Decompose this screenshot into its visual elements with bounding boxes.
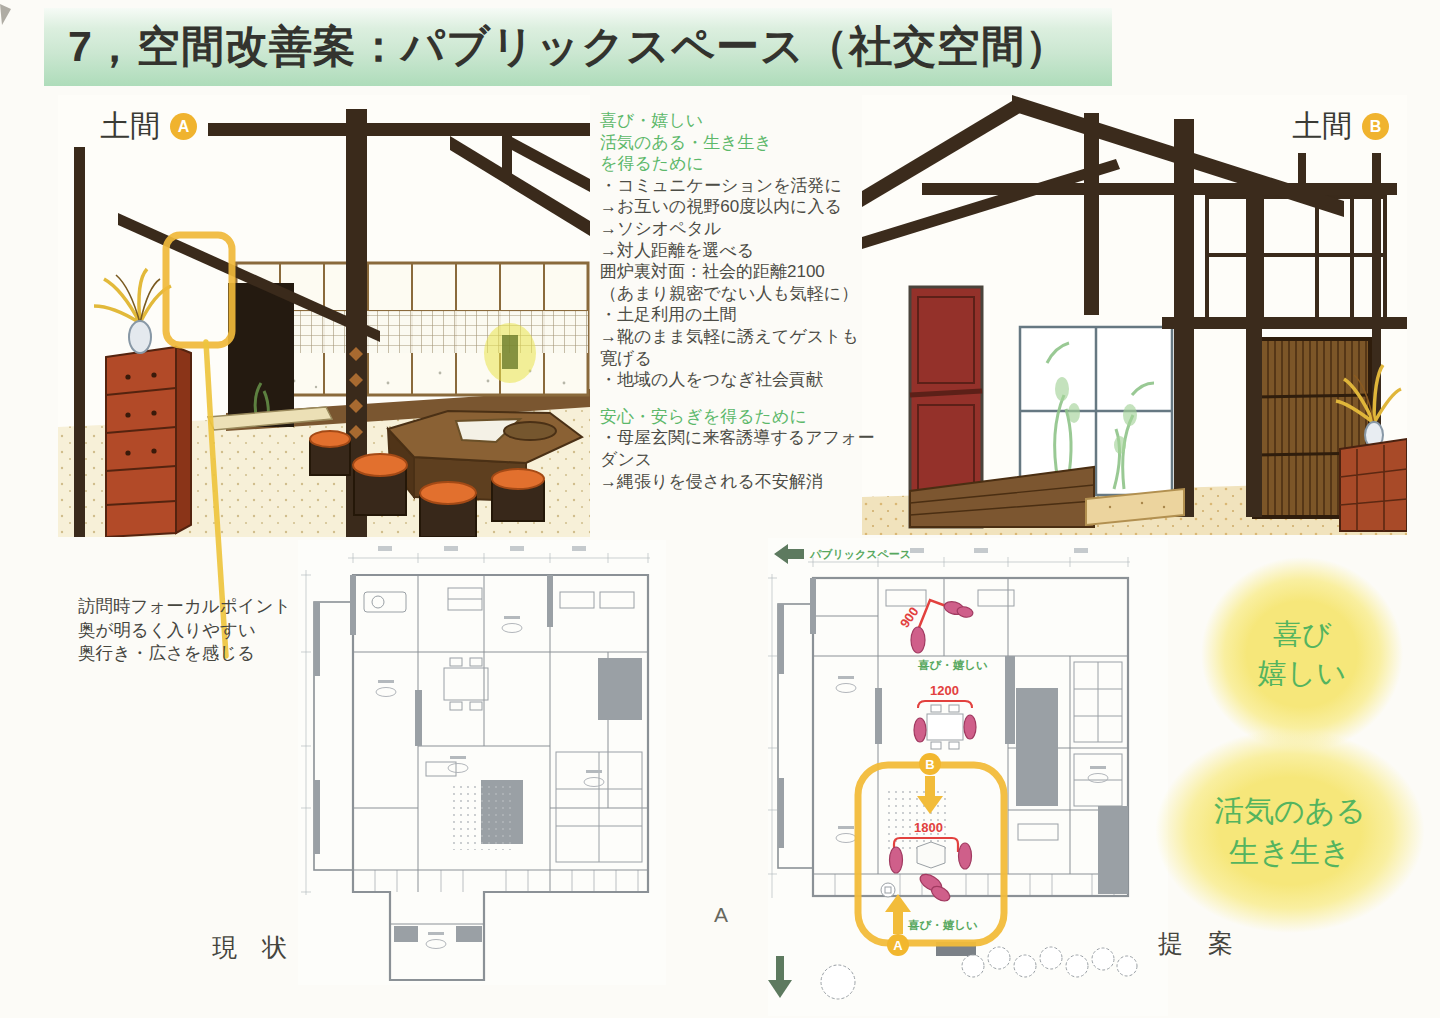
svg-text:B: B	[925, 757, 934, 772]
focal-note-line: 訪問時フォーカルポイント	[78, 595, 291, 619]
focal-point-note: 訪問時フォーカルポイント奥が明るく入りやすい奥行き・広さを感じる	[78, 595, 291, 666]
note-line: 活気のある・生き生き	[600, 132, 900, 154]
note-line: ・土足利用の土間	[600, 304, 900, 326]
note-line: 寛げる	[600, 348, 900, 370]
plan-current-caption: 現 状	[212, 931, 287, 964]
plan-view-letter: A	[714, 903, 728, 927]
sketch-a-label: 土間	[100, 106, 160, 147]
focal-note-line: 奥が明るく入りやすい	[78, 619, 291, 643]
focal-note-line: 奥行き・広さを感じる	[78, 642, 291, 666]
note-line	[600, 391, 900, 406]
joy-label-center: 喜び・嬉しい	[917, 659, 988, 671]
note-line: →靴のまま気軽に誘えてゲストも	[600, 326, 900, 348]
sketch-doma-b: 土間 B	[862, 95, 1407, 535]
note-line: （あまり親密でない人も気軽に）	[600, 283, 900, 305]
page-title: 7，空間改善案：パブリックスペース（社交空間）	[68, 18, 1069, 76]
highlight-blob-vitality: 活気のある 生き生き	[1154, 728, 1426, 934]
benefit-notes: 喜び・嬉しい活気のある・生き生きを得るために・コミュニケーションを活発に→お互い…	[600, 110, 900, 492]
blob-vitality-line1: 活気のある	[1214, 790, 1366, 831]
doma-a-illustration	[58, 95, 590, 537]
svg-text:A: A	[893, 938, 903, 953]
scan-artifact	[0, 4, 18, 28]
doma-b-illustration	[862, 95, 1407, 535]
marker-b-badge: B	[1362, 113, 1389, 140]
note-line: ・地域の人をつなぎ社会貢献	[600, 369, 900, 391]
note-line: →お互いの視野60度以内に入る	[600, 196, 900, 218]
note-line: →対人距離を選べる	[600, 240, 900, 262]
sketch-a-title: 土間 A	[100, 106, 197, 147]
highlight-blob-joy: 喜び 嬉しい	[1200, 556, 1404, 752]
note-line: 囲炉裏対面：社会的距離2100	[600, 261, 900, 283]
note-line: を得るために	[600, 153, 900, 175]
public-space-label: パブリックスペース	[809, 548, 911, 560]
note-line: ・コミュニケーションを活発に	[600, 175, 900, 197]
note-line: 喜び・嬉しい	[600, 110, 900, 132]
marker-a-badge: A	[170, 113, 197, 140]
blob-joy-line1: 喜び	[1273, 615, 1332, 654]
blob-joy-line2: 嬉しい	[1258, 654, 1346, 693]
note-line: →縄張りを侵される不安解消	[600, 471, 900, 493]
sketch-doma-a: 土間 A	[58, 95, 590, 537]
sketch-b-title: 土間 B	[1292, 106, 1389, 147]
note-line: ・母屋玄関に来客誘導するアフォー	[600, 427, 900, 449]
plan-proposal-caption: 提 案	[1158, 927, 1233, 960]
joy-label-bottom: 喜び・嬉しい	[907, 919, 978, 931]
dim-1800: 1800	[914, 820, 943, 835]
title-banner: 7，空間改善案：パブリックスペース（社交空間）	[44, 8, 1112, 86]
blob-vitality-line2: 生き生き	[1229, 831, 1350, 872]
note-line: ダンス	[600, 449, 900, 471]
dim-1200: 1200	[930, 683, 959, 698]
note-line: 安心・安らぎを得るために	[600, 406, 900, 428]
floor-plan-current	[298, 540, 666, 985]
floor-plan-proposal: パブリックスペース 900 喜び・嬉しい 1200	[768, 538, 1168, 1016]
sketch-b-label: 土間	[1292, 106, 1352, 147]
note-line: →ソシオペタル	[600, 218, 900, 240]
